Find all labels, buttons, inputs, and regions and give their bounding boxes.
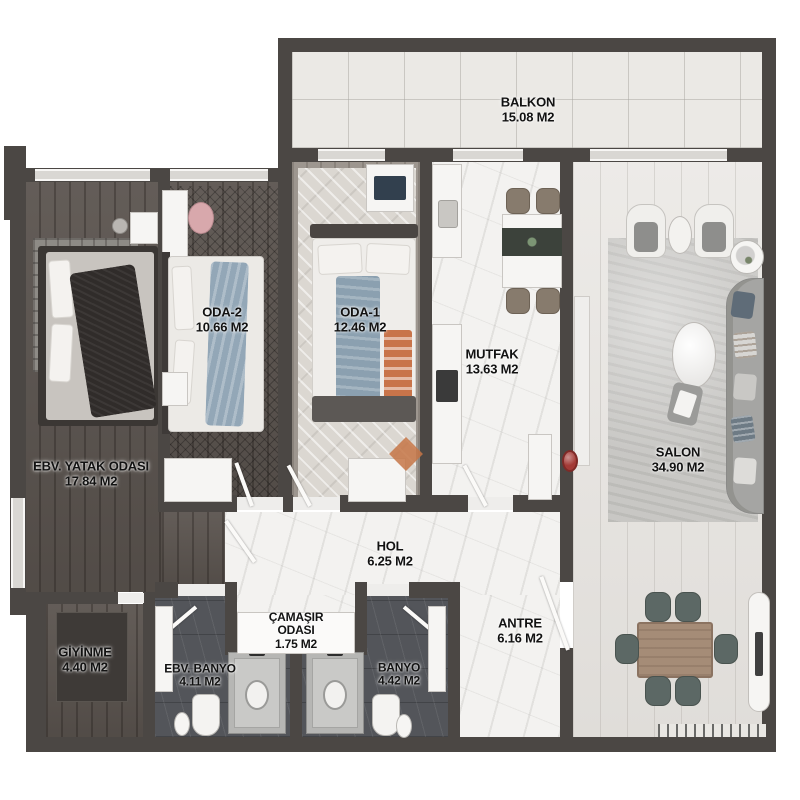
room-label-mutfak: MUTFAK 13.63 M2 bbox=[466, 347, 519, 376]
wall-giyinme-banyo bbox=[143, 592, 155, 737]
window-salon-balcony bbox=[590, 149, 727, 161]
wardrobe-oda1-south bbox=[348, 458, 406, 502]
red-valve-marker bbox=[562, 450, 578, 472]
room-label-camasir: ÇAMAŞIR ODASI 1.75 M2 bbox=[256, 611, 336, 651]
room-area-ebv-banyo: 4.11 M2 bbox=[164, 676, 236, 689]
threshold-oda2-door bbox=[237, 497, 283, 510]
room-name-antre: ANTRE bbox=[497, 616, 543, 631]
room-name-oda1: ODA-1 bbox=[334, 305, 387, 320]
kitchen-sink bbox=[438, 200, 458, 228]
dining-chair-2 bbox=[675, 592, 701, 622]
room-area-balkon: 15.08 M2 bbox=[501, 110, 555, 125]
wall-banyo-antre bbox=[448, 582, 460, 737]
room-label-oda1: ODA-1 12.46 M2 bbox=[334, 305, 387, 334]
wall-shower-divider bbox=[290, 652, 302, 737]
wall-bath-top-a bbox=[155, 582, 178, 598]
floor-plan: BALKON 15.08 M2 ODA-2 10.66 M2 ODA-1 12.… bbox=[0, 0, 800, 800]
room-label-ebv-yatak: EBV. YATAK ODASI 17.84 M2 bbox=[33, 459, 149, 488]
wall-giyinme-top bbox=[20, 592, 118, 604]
room-area-giyinme: 4.40 M2 bbox=[58, 660, 112, 675]
room-name-hol: HOL bbox=[367, 539, 413, 554]
kitchen-chair-1 bbox=[506, 188, 530, 214]
kitchen-tall-unit bbox=[528, 434, 552, 500]
window-mutfak-balcony bbox=[453, 149, 523, 161]
wall-balcony-left bbox=[278, 52, 292, 148]
vanity-banyo bbox=[428, 606, 446, 692]
wall-antre-salon-lower bbox=[560, 648, 573, 737]
window-master-top bbox=[35, 169, 150, 181]
wall-left-notch bbox=[4, 146, 26, 220]
mirror-master bbox=[112, 218, 128, 234]
dining-table bbox=[637, 622, 713, 678]
room-name-camasir: ÇAMAŞIR ODASI bbox=[256, 611, 336, 638]
room-area-oda2: 10.66 M2 bbox=[196, 320, 249, 335]
bed-master-pillow-1 bbox=[48, 259, 74, 318]
room-area-oda1: 12.46 M2 bbox=[334, 320, 387, 335]
shower-ebv-banyo bbox=[228, 652, 286, 734]
room-label-balkon: BALKON 15.08 M2 bbox=[501, 95, 555, 124]
kitchen-table-runner bbox=[502, 228, 562, 256]
window-master-left bbox=[11, 498, 25, 588]
dining-chair-3 bbox=[615, 634, 639, 664]
tv-oda1 bbox=[374, 176, 406, 200]
radiator-hatch bbox=[658, 724, 766, 737]
shower-drain-banyo bbox=[323, 680, 347, 710]
nightstand-master bbox=[130, 212, 158, 244]
wall-laundry-left bbox=[225, 582, 237, 655]
room-name-mutfak: MUTFAK bbox=[466, 347, 519, 362]
toilet-ebv-banyo bbox=[192, 694, 220, 736]
wall-laundry-right bbox=[355, 582, 367, 655]
salon-console bbox=[574, 296, 590, 466]
room-label-salon: SALON 34.90 M2 bbox=[652, 445, 705, 474]
room-name-giyinme: GİYİNME bbox=[58, 645, 112, 660]
shower-drain-ebv bbox=[245, 680, 269, 710]
room-area-hol: 6.25 M2 bbox=[367, 554, 413, 569]
armchair-2-seat bbox=[702, 222, 726, 252]
room-name-balkon: BALKON bbox=[501, 95, 555, 110]
bed-oda1-pillow-1 bbox=[317, 243, 363, 275]
wall-oda1-mutfak bbox=[420, 162, 432, 508]
dining-chair-4 bbox=[714, 634, 738, 664]
sink-ebv-banyo bbox=[174, 712, 190, 736]
room-label-banyo: BANYO 4.42 M2 bbox=[378, 662, 420, 689]
threshold-oda1-door bbox=[293, 497, 340, 510]
room-name-oda2: ODA-2 bbox=[196, 305, 249, 320]
kitchen-chair-2 bbox=[536, 188, 560, 214]
sofa-pillow-4 bbox=[730, 415, 755, 444]
wall-left-lower bbox=[26, 604, 46, 752]
wardrobe-oda2-south bbox=[164, 458, 232, 502]
sofa-pillow-3 bbox=[733, 373, 757, 401]
room-area-banyo: 4.42 M2 bbox=[378, 675, 420, 688]
threshold-mutfak-door bbox=[468, 497, 513, 510]
floor-corridor bbox=[162, 512, 228, 592]
sofa-pillow-1 bbox=[730, 291, 755, 320]
bed-master-pillow-2 bbox=[48, 323, 73, 382]
sofa-pillow-2 bbox=[733, 331, 758, 359]
sink-banyo bbox=[396, 714, 412, 738]
side-table-oval bbox=[668, 216, 692, 254]
tv-salon bbox=[755, 632, 763, 676]
dining-chair-6 bbox=[675, 676, 701, 706]
bed-oda1-foot-throw bbox=[312, 396, 416, 422]
wall-bottom bbox=[38, 737, 776, 752]
bed-oda2-throw bbox=[205, 261, 249, 426]
sofa-pillow-5 bbox=[733, 457, 757, 484]
window-oda1-balcony bbox=[318, 149, 385, 161]
wall-bath-top-b bbox=[409, 582, 448, 598]
dining-chair-1 bbox=[645, 592, 671, 622]
threshold-ebv-banyo-door bbox=[178, 584, 225, 596]
pouf-oda2 bbox=[188, 202, 214, 234]
bed-oda1-pillow-2 bbox=[365, 243, 411, 275]
room-label-hol: HOL 6.25 M2 bbox=[367, 539, 413, 568]
kitchen-chair-3 bbox=[506, 288, 530, 314]
bed-oda1-headboard bbox=[310, 224, 418, 238]
threshold-giyinme-door bbox=[118, 593, 144, 603]
room-area-camasir: 1.75 M2 bbox=[256, 638, 336, 651]
dresser-oda2 bbox=[162, 372, 188, 406]
room-area-antre: 6.16 M2 bbox=[497, 631, 543, 646]
room-name-salon: SALON bbox=[652, 445, 705, 460]
room-area-mutfak: 13.63 M2 bbox=[466, 362, 519, 377]
room-label-antre: ANTRE 6.16 M2 bbox=[497, 616, 543, 645]
plant-table bbox=[730, 240, 764, 274]
armchair-1-seat bbox=[634, 222, 658, 252]
wall-oda2-oda1 bbox=[278, 148, 292, 508]
room-area-salon: 34.90 M2 bbox=[652, 460, 705, 475]
room-name-ebv-yatak: EBV. YATAK ODASI bbox=[33, 459, 149, 474]
coffee-table bbox=[672, 322, 716, 388]
window-oda2-top bbox=[170, 169, 268, 181]
kitchen-chair-4 bbox=[536, 288, 560, 314]
wall-hol-top-b bbox=[283, 495, 293, 512]
shower-banyo bbox=[306, 652, 364, 734]
bed-oda2-pillow-1 bbox=[171, 266, 194, 331]
wall-balcony-top bbox=[278, 38, 776, 52]
room-area-ebv-yatak: 17.84 M2 bbox=[33, 474, 149, 489]
dining-chair-5 bbox=[645, 676, 671, 706]
kitchen-oven bbox=[436, 370, 458, 402]
room-label-ebv-banyo: EBV. BANYO 4.11 M2 bbox=[164, 663, 236, 690]
room-label-oda2: ODA-2 10.66 M2 bbox=[196, 305, 249, 334]
threshold-banyo-door bbox=[367, 584, 409, 596]
room-label-giyinme: GİYİNME 4.40 M2 bbox=[58, 645, 112, 674]
